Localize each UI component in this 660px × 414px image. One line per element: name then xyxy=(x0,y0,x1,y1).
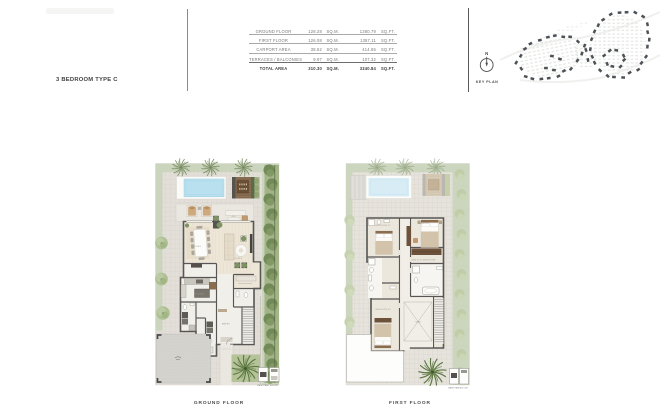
svg-text:BEDROOM 03: BEDROOM 03 xyxy=(375,309,391,311)
svg-text:LIVING: LIVING xyxy=(234,258,242,260)
svg-text:WATER TANK: WATER TANK xyxy=(257,384,269,387)
svg-text:BEDROOM 02: BEDROOM 02 xyxy=(375,225,391,227)
svg-text:DINING: DINING xyxy=(193,246,201,248)
svg-text:MASTER: MASTER xyxy=(419,222,429,225)
svg-text:WALK-IN WARDROBE: WALK-IN WARDROBE xyxy=(412,259,436,262)
svg-text:VOID: VOID xyxy=(415,322,421,324)
svg-text:A/C UNIT: A/C UNIT xyxy=(270,384,279,387)
svg-text:KITCHEN: KITCHEN xyxy=(194,294,205,296)
svg-text:A/C UNIT: A/C UNIT xyxy=(460,386,469,389)
svg-text:WATER TANK: WATER TANK xyxy=(448,386,460,389)
svg-text:ENTRY: ENTRY xyxy=(222,324,230,326)
svg-text:N: N xyxy=(485,51,488,56)
